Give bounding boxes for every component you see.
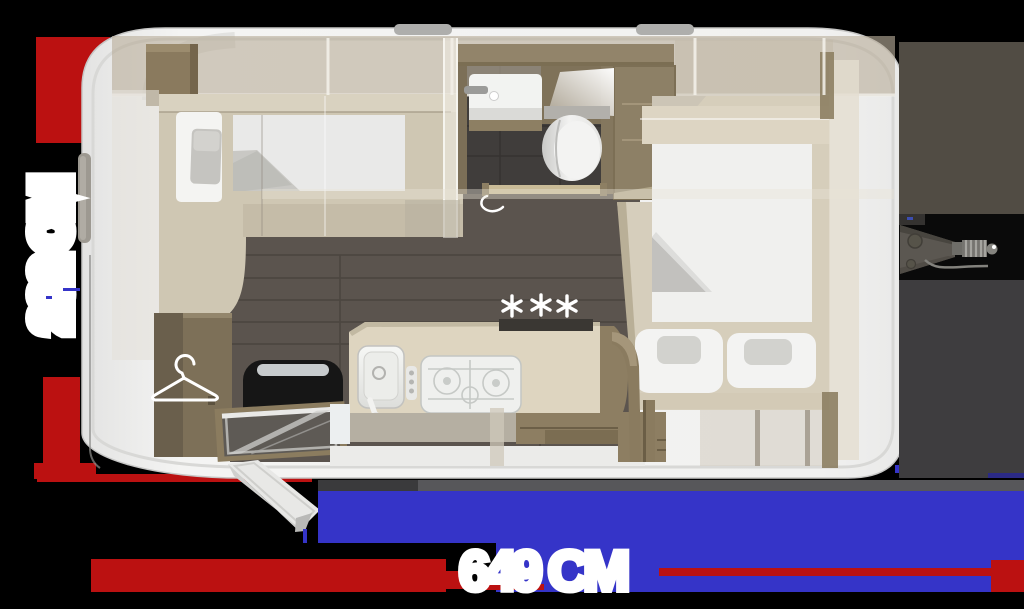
svg-text:232 CM: 232 CM — [23, 180, 79, 332]
svg-text:649 CM: 649 CM — [459, 539, 626, 602]
